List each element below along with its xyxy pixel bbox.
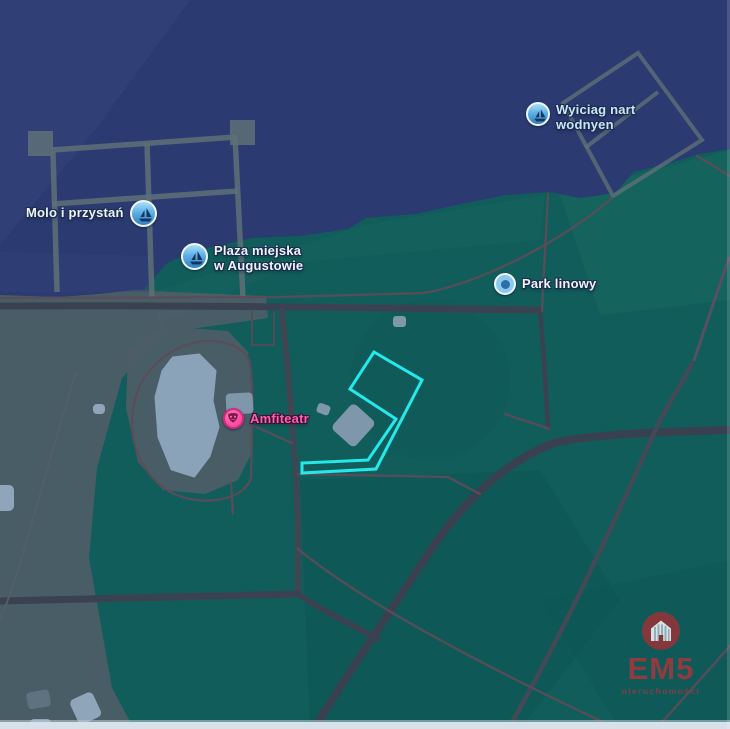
- poi-label-line1: Wyiciag nart: [556, 102, 635, 117]
- house-icon: [642, 612, 680, 650]
- brand-name: EM5: [615, 654, 707, 684]
- poi-molo-i-przystan[interactable]: Molo i przystań: [26, 199, 157, 227]
- poi-label-line1: Plaza miejska: [214, 243, 303, 258]
- sailboat-icon: [526, 102, 550, 126]
- poi-label-line2: wodnyen: [556, 117, 635, 132]
- poi-label: Amfiteatr: [250, 408, 309, 429]
- poi-dot-icon: [494, 273, 516, 295]
- em5-watermark: EM5 nieruchomości: [615, 612, 707, 696]
- theater-mask-icon: [223, 408, 244, 429]
- poi-wyciag-nart[interactable]: Wyiciag nart wodnyen: [526, 102, 635, 132]
- brand-tagline: nieruchomości: [615, 686, 707, 696]
- poi-amfiteatr[interactable]: Amfiteatr: [223, 408, 309, 429]
- poi-label-line2: w Augustowie: [214, 258, 303, 273]
- poi-label: Park linowy: [522, 273, 596, 295]
- map-view[interactable]: Molo i przystań Plaza miejska w Augustow…: [0, 0, 730, 729]
- poi-label: Molo i przystań: [26, 199, 124, 227]
- poi-park-linowy[interactable]: Park linowy: [494, 273, 596, 295]
- brand-circle: [642, 612, 680, 650]
- sailboat-icon: [181, 243, 208, 270]
- poi-plaza-miejska[interactable]: Plaza miejska w Augustowie: [181, 243, 303, 273]
- sailboat-icon: [130, 200, 157, 227]
